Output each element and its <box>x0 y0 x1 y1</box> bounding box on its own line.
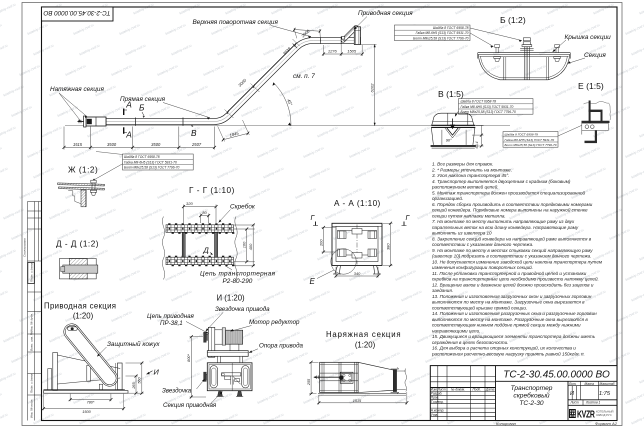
svg-text:Копировал: Копировал <box>496 421 517 426</box>
svg-text:соответствующем нижнем поддоне: соответствующем нижнем поддоне прямой се… <box>432 322 581 328</box>
svg-text:Верхняя поворотная секция: Верхняя поворотная секция <box>193 19 279 26</box>
svg-text:Подп.: Подп. <box>473 388 482 392</box>
svg-text:Д: Д <box>203 246 210 255</box>
svg-text:И: И <box>570 391 574 397</box>
svg-text:организацией.: организацией. <box>432 195 463 201</box>
svg-text:Е: Е <box>310 277 316 286</box>
svg-text:2. * Размеры уточнить на монта: 2. * Размеры уточнить на монтаже. <box>431 167 512 172</box>
svg-text:7. На монтаже по месту выполн: 7. На монтаже по месту выполнить направл… <box>432 219 575 224</box>
svg-text:выполняются по месту на монтаж: выполняются по месту на монтаже. Разгруз… <box>432 317 588 322</box>
svg-text:6. Порядок сборки производить: 6. Порядок сборки производить в соответс… <box>432 202 593 207</box>
svg-text:380: 380 <box>385 243 390 250</box>
svg-text:560: 560 <box>138 376 142 383</box>
svg-text:100: 100 <box>242 241 247 248</box>
svg-text:(швеллер 10) подрезать в соот: (швеллер 10) подрезать в соответствии с … <box>432 254 591 259</box>
svg-text:№ докум.: № докум. <box>451 388 465 392</box>
svg-text:14. Положения и изготовления: 14. Положения и изготовления разгрузочны… <box>432 311 597 316</box>
svg-text:Дата: Дата <box>485 388 495 392</box>
svg-text:ограждения в целях безопасност: ограждения в целях безопасности. <box>432 340 508 345</box>
svg-text:80: 80 <box>202 210 207 215</box>
svg-text:Болт М8х25,58 (S13) ГОСТ 7: Болт М8х25,58 (S13) ГОСТ 7796-70 <box>413 36 469 40</box>
svg-text:Подп. и дата: Подп. и дата <box>30 373 34 393</box>
svg-text:(1:20): (1:20) <box>355 340 376 349</box>
svg-text:9. На монтаже по месту в мест: 9. На монтаже по месту в местах стыковки… <box>432 247 593 253</box>
svg-text:В (1:5): В (1:5) <box>438 89 464 99</box>
svg-text:Масса: Масса <box>585 382 595 386</box>
svg-text:Гайка М8-6Н5 (S13) ГОСТ 59: Гайка М8-6Н5 (S13) ГОСТ 5931-70 <box>124 160 177 164</box>
svg-text:1. Все размеры для справок.: 1. Все размеры для справок. <box>432 162 493 167</box>
svg-text:Натяжная секция: Натяжная секция <box>50 86 104 93</box>
svg-text:Утв.: Утв. <box>431 413 438 417</box>
svg-text:Секция приводная: Секция приводная <box>163 402 217 409</box>
svg-text:Лит.: Лит. <box>568 382 577 386</box>
svg-text:выполняются по месту на монтаж: выполняются по месту на монтаже. Загрузо… <box>432 300 585 305</box>
svg-text:И (1:20): И (1:20) <box>217 294 246 303</box>
svg-text:320: 320 <box>186 201 193 206</box>
svg-text:секций конвейера. Порядковые: секций конвейера. Порядковые номера выпо… <box>432 207 588 213</box>
svg-text:Листов 1: Листов 1 <box>585 401 600 405</box>
svg-text:Шайба 8 ГОСТ 6958-78: Шайба 8 ГОСТ 6958-78 <box>461 100 497 104</box>
svg-text:400: 400 <box>248 243 253 250</box>
svg-text:Р2-80-290: Р2-80-290 <box>223 278 253 285</box>
svg-text:265: 265 <box>132 381 136 389</box>
svg-text:Шайба 8 ГОСТ 6958-78: Шайба 8 ГОСТ 6958-78 <box>433 26 469 30</box>
svg-text:Звездочка привода: Звездочка привода <box>215 306 270 313</box>
svg-text:Лист: Лист <box>570 401 580 405</box>
svg-text:3. Угол наклона транспортера: 3. Угол наклона транспортера 45°. <box>432 173 510 178</box>
svg-text:ТС-2-30.45.00.0000 ВО: ТС-2-30.45.00.0000 ВО <box>503 370 610 381</box>
svg-text:выполнять из швеллера 10: выполнять из швеллера 10 <box>432 231 492 236</box>
svg-text:11. После установки транспорт: 11. После установки транспортерной и при… <box>432 270 587 276</box>
svg-text:Приводная секция: Приводная секция <box>44 302 116 311</box>
svg-text:Инв. № подл.: Инв. № подл. <box>30 399 34 418</box>
svg-text:Крышка секции: Крышка секции <box>565 34 612 41</box>
svg-text:KVZR: KVZR <box>577 409 595 420</box>
svg-text:В: В <box>191 128 197 138</box>
svg-text:10. Не допускается изменение з: 10. Не допускается изменение заводской ц… <box>432 258 603 264</box>
svg-text:1505: 1505 <box>347 49 357 54</box>
svg-text:Д - Д (1:2): Д - Д (1:2) <box>56 240 99 249</box>
svg-text:2507: 2507 <box>191 142 202 147</box>
svg-text:Масштаб: Масштаб <box>600 382 615 386</box>
svg-text:Наряжная секция: Наряжная секция <box>326 330 401 339</box>
svg-text:Подп. и дата: Подп. и дата <box>30 262 34 282</box>
svg-text:изменения конфигурации поворот: изменения конфигурации поворотных секций… <box>432 264 533 270</box>
svg-text:параллельных веток на всю длин: параллельных веток на всю длину конвейер… <box>432 224 579 230</box>
svg-text:3500: 3500 <box>107 142 117 147</box>
svg-text:1276: 1276 <box>328 49 338 54</box>
svg-text:Ж (1:2): Ж (1:2) <box>68 166 98 175</box>
svg-text:Болт М8х25,58 (S13) ГОСТ 7: Болт М8х25,58 (S13) ГОСТ 7796-70 <box>505 143 557 147</box>
svg-text:(1:20): (1:20) <box>73 311 94 320</box>
svg-text:расположения расчетно-весовую: расположения расчетно-весовую нагрузку п… <box>431 350 585 356</box>
svg-text:Пров.: Пров. <box>431 396 440 400</box>
svg-text:расположением ветвей цепей.: расположением ветвей цепей. <box>431 184 499 190</box>
svg-text:15. Движущиеся и вращающиеся: 15. Движущиеся и вращающиеся элементы тр… <box>432 334 596 339</box>
svg-text:13. Положения и изготовления з: 13. Положения и изготовления загрузочных… <box>432 294 592 299</box>
svg-text:12. Вращение валов и движение: 12. Вращение валов и движение цепей долж… <box>432 281 594 287</box>
svg-text:Защитный кожух: Защитный кожух <box>107 340 160 348</box>
svg-text:63,4: 63,4 <box>475 142 479 149</box>
svg-text:3500: 3500 <box>151 142 161 147</box>
svg-text:340: 340 <box>354 271 361 276</box>
svg-text:Транспортер: Транспортер <box>511 385 553 392</box>
svg-text:8. Закрепление секций конвейе: 8. Закрепление секций конвейера на напра… <box>432 235 592 241</box>
svg-text:Б (1:2): Б (1:2) <box>500 15 526 25</box>
svg-text:ПР-38,1: ПР-38,1 <box>160 320 183 327</box>
svg-text:соответствующей крышке прямой: соответствующей крышке прямой секции. <box>432 304 527 310</box>
svg-text:Шайба 8 ГОСТ 6958-78: Шайба 8 ГОСТ 6958-78 <box>505 133 539 137</box>
svg-text:Е (1:5): Е (1:5) <box>578 81 604 91</box>
svg-text:1:75: 1:75 <box>599 391 611 397</box>
svg-text:заедания.: заедания. <box>431 288 453 293</box>
svg-text:Взам. инв. №: Взам. инв. № <box>30 331 34 351</box>
svg-text:Опора привода: Опора привода <box>259 343 304 350</box>
svg-text:соответствии с указанием данно: соответствии с указанием данного чертежа… <box>432 242 533 247</box>
svg-text:1515: 1515 <box>73 142 83 147</box>
svg-text:Гайка М8-6Н5 (S13) ГОСТ 59: Гайка М8-6Н5 (S13) ГОСТ 5931-70 <box>505 138 555 142</box>
svg-text:скребковый: скребковый <box>513 392 550 400</box>
svg-text:Цепь транспортерная: Цепь транспортерная <box>200 270 276 277</box>
svg-text:Инв. № дубл.: Инв. № дубл. <box>30 313 34 332</box>
svg-text:скребков на транспортерные цеп: скребков на транспортерные цепи необходи… <box>432 276 599 282</box>
svg-text:4. Транспортер выполняется дв: 4. Транспортер выполняется двухцепным с … <box>432 178 571 184</box>
svg-text:Формат А2: Формат А2 <box>595 421 618 426</box>
svg-text:А: А <box>125 130 132 140</box>
svg-text:Г - Г (1:10): Г - Г (1:10) <box>189 186 235 195</box>
svg-text:ТС-2-30.45.00.0000 ВО: ТС-2-30.45.00.0000 ВО <box>43 9 110 16</box>
svg-text:6102: 6102 <box>370 83 375 93</box>
svg-text:направляющими цепи.: направляющими цепи. <box>432 328 480 333</box>
svg-text:см. п. 7: см. п. 7 <box>293 73 315 80</box>
svg-text:Секция: Секция <box>584 52 606 59</box>
svg-text:Приводная секция: Приводная секция <box>358 9 413 17</box>
svg-text:Гайка М8-6Н5 (S13) ГОСТ 59: Гайка М8-6Н5 (S13) ГОСТ 5931-70 <box>461 105 514 109</box>
svg-text:90°: 90° <box>446 138 452 143</box>
svg-text:Звездочка: Звездочка <box>162 387 192 394</box>
svg-text:Шайба 8 ГОСТ 6958-78: Шайба 8 ГОСТ 6958-78 <box>124 155 160 159</box>
svg-text:255: 255 <box>307 378 311 386</box>
svg-text:800*: 800* <box>187 354 191 362</box>
svg-text:Прямая секция: Прямая секция <box>120 96 166 103</box>
svg-text:И: И <box>154 368 160 377</box>
svg-text:Гайка М8-6Н5 (S13) ГОСТ 59: Гайка М8-6Н5 (S13) ГОСТ 5931-70 <box>416 31 469 35</box>
svg-text:Т.контр.: Т.контр. <box>431 400 444 404</box>
svg-text:Скребок: Скребок <box>230 203 256 211</box>
svg-text:1500: 1500 <box>82 410 91 414</box>
svg-text:Согласовано: Согласовано <box>23 238 27 257</box>
svg-text:1515: 1515 <box>353 399 362 403</box>
svg-text:Цепь приводная: Цепь приводная <box>147 313 195 320</box>
svg-text:ТС-2-30: ТС-2-30 <box>519 400 544 407</box>
svg-text:Мотор редуктор: Мотор редуктор <box>249 319 300 326</box>
svg-text:Болт М8х25,58 (S13) ГОСТ 7: Болт М8х25,58 (S13) ГОСТ 7796-70 <box>461 110 517 114</box>
svg-text:16. Для выбора и расчета опор: 16. Для выбора и расчета опорных констру… <box>432 345 576 351</box>
svg-text:780*: 780* <box>87 401 95 405</box>
svg-text:Болт М8х25,58 (S13) ГОСТ 7: Болт М8х25,58 (S13) ГОСТ 7796-70 <box>124 166 180 170</box>
svg-text:ЗАВОД РУС: ЗАВОД РУС <box>596 413 612 417</box>
svg-text:5. Монтаж транспортера должен: 5. Монтаж транспортера должен производит… <box>432 189 586 195</box>
svg-text:Б: Б <box>139 103 145 113</box>
svg-text:А - А (1:10): А - А (1:10) <box>334 199 381 208</box>
svg-text:секции путем наплавки металла.: секции путем наплавки металла. <box>432 213 506 218</box>
svg-text:200: 200 <box>318 239 323 247</box>
